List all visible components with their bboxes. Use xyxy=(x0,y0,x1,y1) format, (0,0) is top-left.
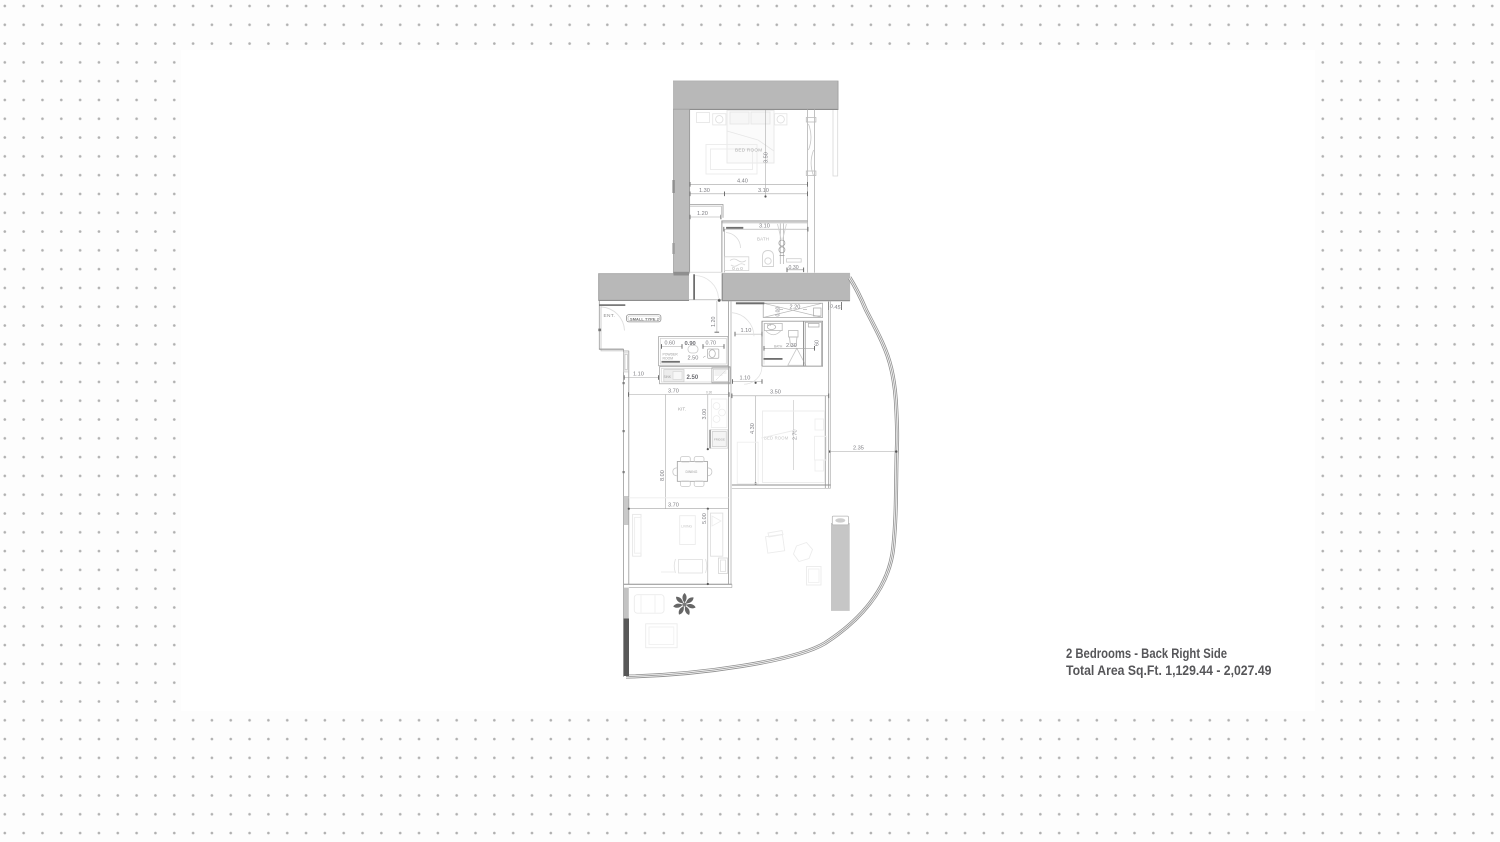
svg-text:3.00: 3.00 xyxy=(702,409,708,420)
svg-text:1.10: 1.10 xyxy=(741,328,752,334)
svg-text:0.60: 0.60 xyxy=(665,341,676,347)
svg-text:3.50: 3.50 xyxy=(770,390,781,396)
svg-text:SMALL TYPE 2: SMALL TYPE 2 xyxy=(630,316,660,321)
svg-text:8.00: 8.00 xyxy=(660,470,666,481)
svg-text:ENT.: ENT. xyxy=(604,313,616,319)
svg-text:3.50: 3.50 xyxy=(763,152,769,163)
svg-text:0.00: 0.00 xyxy=(776,307,782,317)
svg-text:BATH: BATH xyxy=(774,344,783,348)
svg-text:DINING: DINING xyxy=(686,470,698,474)
svg-text:2.50: 2.50 xyxy=(687,375,699,381)
svg-text:1.10: 1.10 xyxy=(740,375,751,381)
svg-text:LIVING: LIVING xyxy=(681,524,692,528)
svg-text:1.30: 1.30 xyxy=(699,188,710,194)
svg-text:BATH: BATH xyxy=(757,236,769,241)
svg-text:FRIDGE: FRIDGE xyxy=(714,438,725,442)
svg-text:2.30: 2.30 xyxy=(786,343,797,349)
svg-text:2.35: 2.35 xyxy=(853,445,864,451)
svg-text:ROOM: ROOM xyxy=(663,356,674,360)
svg-text:5.00: 5.00 xyxy=(702,513,708,524)
svg-text:4.40: 4.40 xyxy=(737,178,748,184)
svg-text:2.50: 2.50 xyxy=(688,356,699,362)
svg-text:3.70: 3.70 xyxy=(668,388,679,394)
svg-text:2.70: 2.70 xyxy=(793,430,799,441)
svg-text:0.70: 0.70 xyxy=(706,341,717,347)
svg-text:2.20: 2.20 xyxy=(790,304,801,310)
svg-text:3.70: 3.70 xyxy=(668,503,679,509)
svg-text:0.90: 0.90 xyxy=(685,341,696,347)
svg-text:1.10: 1.10 xyxy=(633,371,644,377)
svg-text:1.20: 1.20 xyxy=(697,211,708,217)
svg-text:3.10: 3.10 xyxy=(758,188,769,194)
svg-text:3.10: 3.10 xyxy=(759,224,770,230)
svg-text:0.30: 0.30 xyxy=(706,390,712,394)
svg-text:60: 60 xyxy=(815,340,821,346)
svg-text:BED ROOM: BED ROOM xyxy=(735,148,762,153)
svg-text:1.20: 1.20 xyxy=(711,317,717,328)
svg-text:SINK: SINK xyxy=(664,375,672,379)
svg-text:KIT.: KIT. xyxy=(678,406,686,411)
svg-text:6.5: 6.5 xyxy=(767,323,772,327)
svg-text:4.30: 4.30 xyxy=(750,423,756,434)
